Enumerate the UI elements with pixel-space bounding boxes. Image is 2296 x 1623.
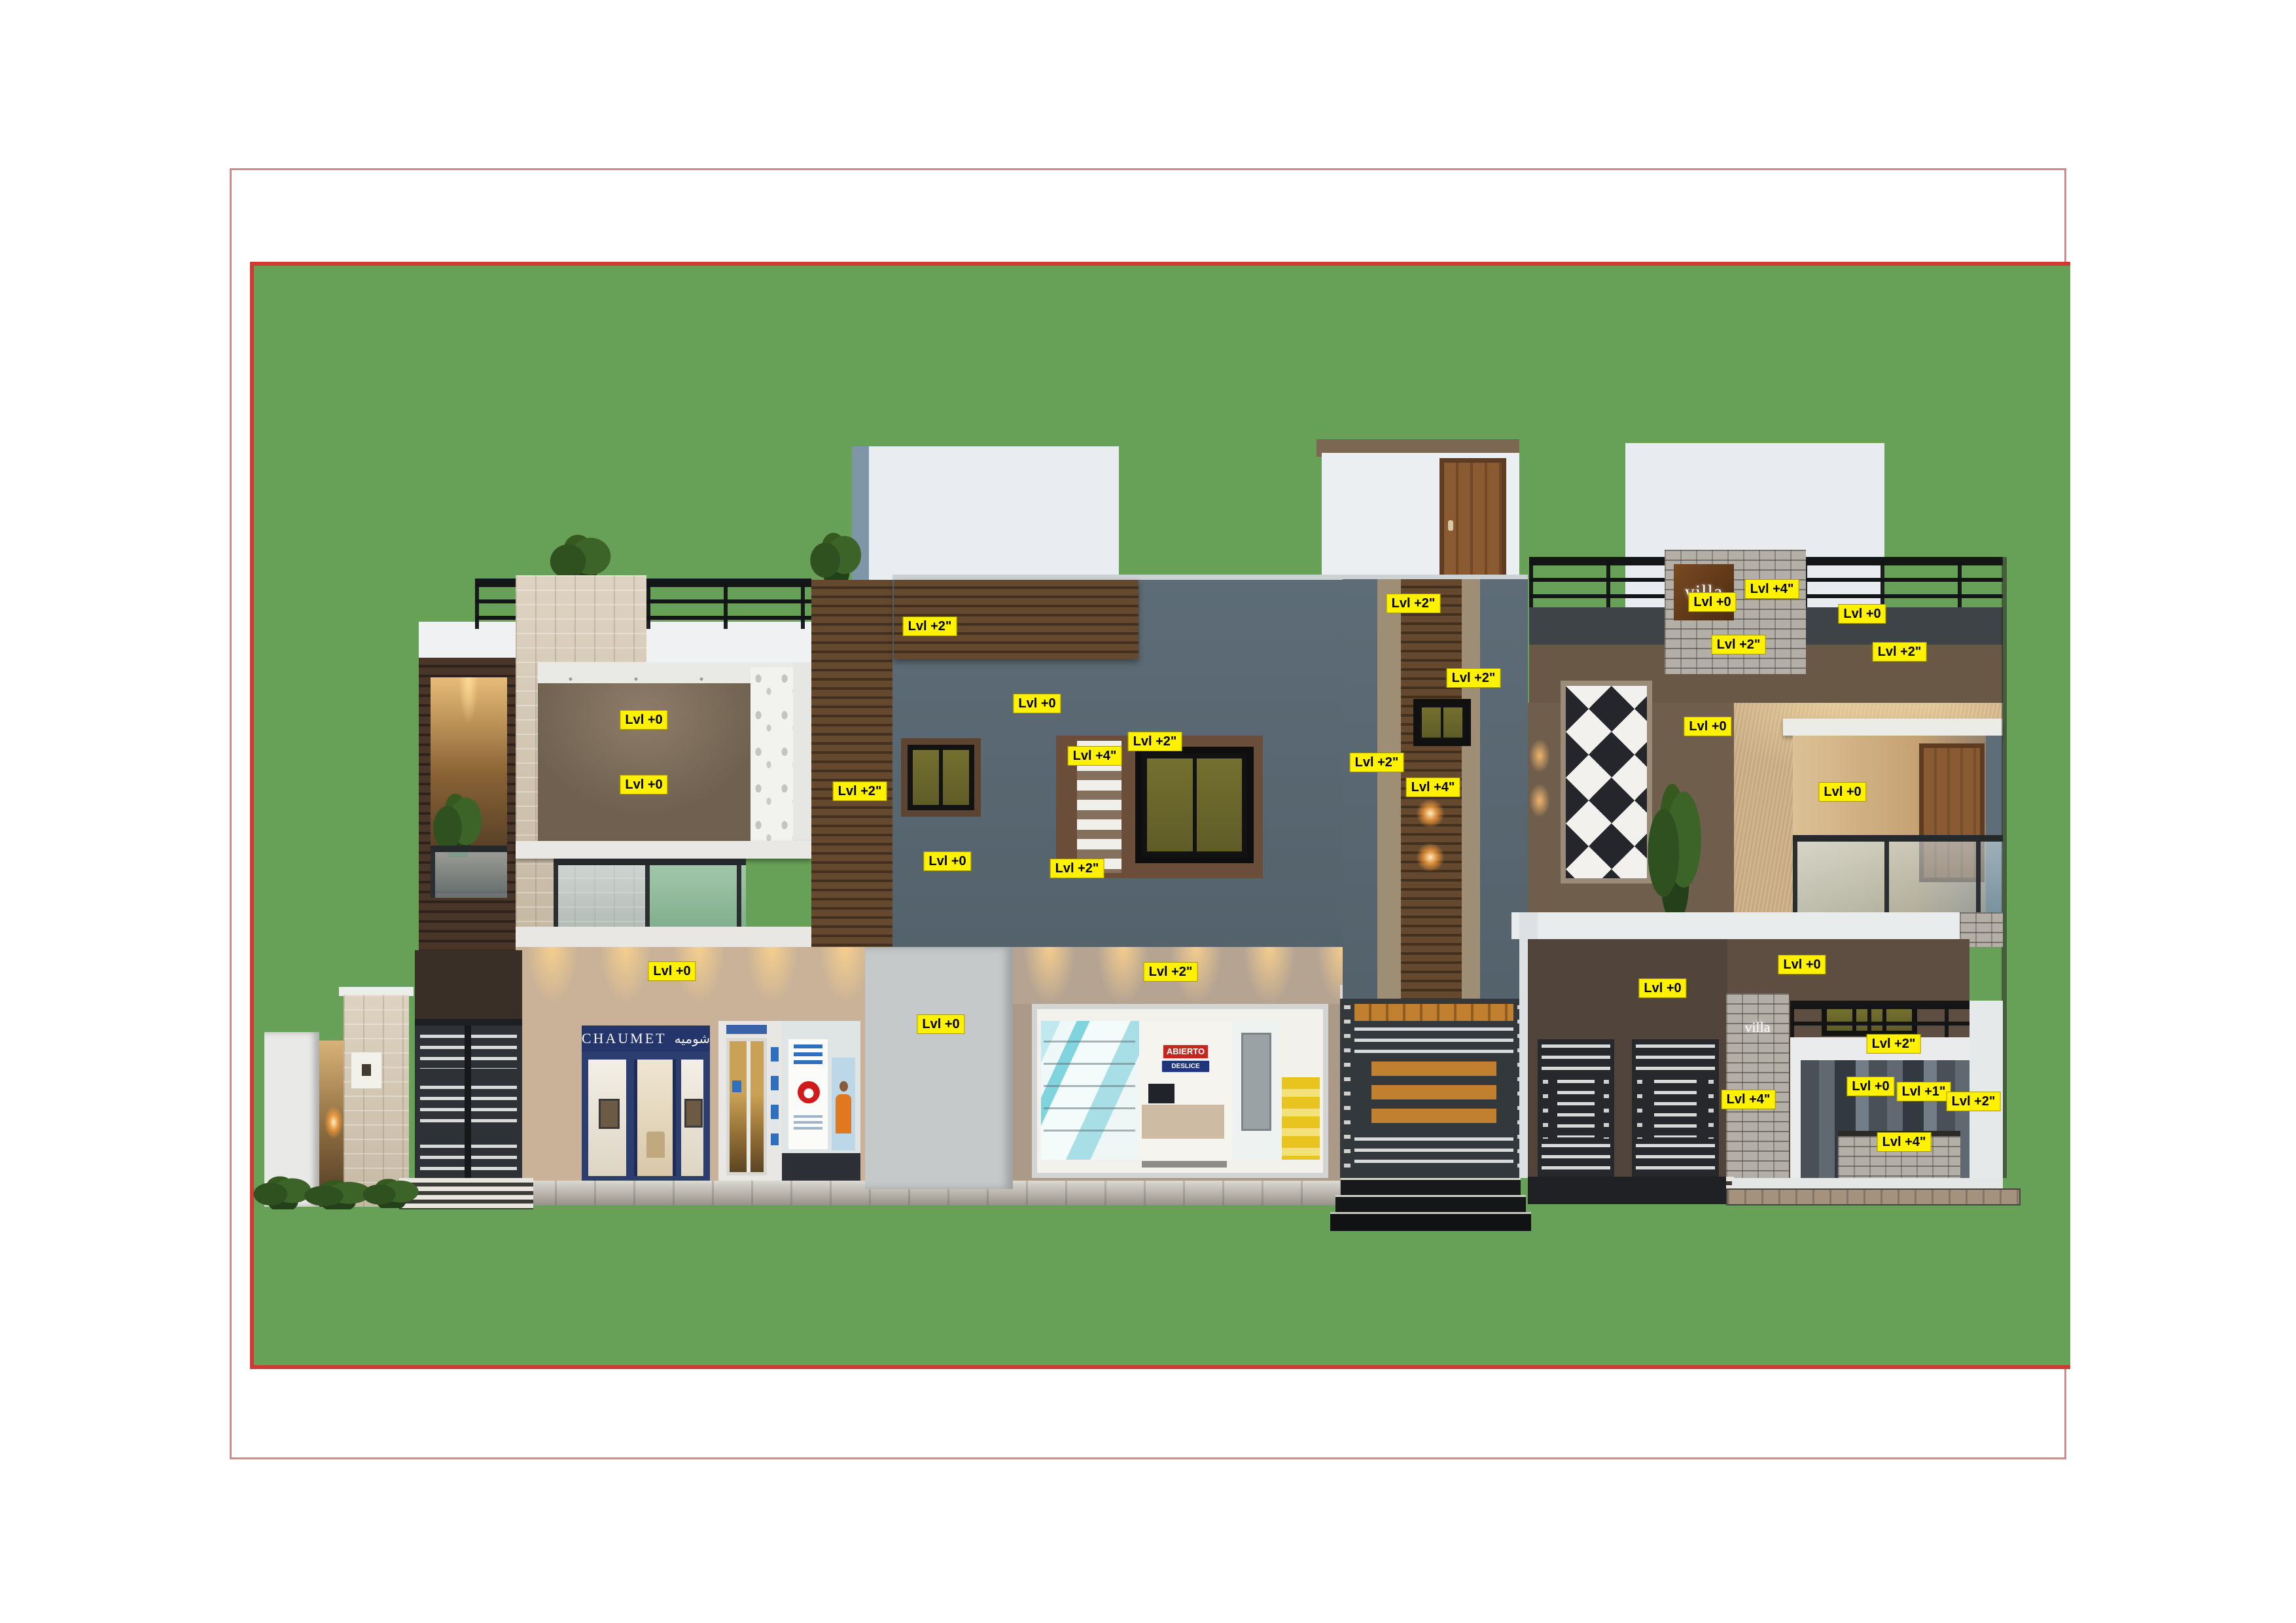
open-door-interior	[1139, 1021, 1232, 1160]
glass-entrance-door	[726, 1038, 767, 1175]
slide-sign: DESLICE	[1161, 1060, 1210, 1073]
terrace-railing-right	[646, 579, 811, 629]
gate-center-stile	[465, 1026, 471, 1178]
computer-monitor	[1148, 1084, 1174, 1103]
entry-right-pillar	[1969, 1001, 2003, 1178]
louver-ladder-strip	[1077, 741, 1122, 873]
checkout-counter	[1142, 1105, 1224, 1139]
poster-header-lines	[794, 1044, 822, 1067]
middle-window-small	[901, 738, 981, 817]
entry-frame-top	[1790, 1037, 1969, 1060]
garage-gate	[1340, 999, 1528, 1178]
terrace-railing-left	[475, 579, 517, 629]
window-base-band	[782, 1153, 860, 1183]
display-picture	[684, 1099, 703, 1128]
tower-wall-light-upper	[1411, 793, 1450, 834]
porch-shadow	[415, 950, 522, 1019]
villa-balcony-plant	[1646, 780, 1704, 912]
villa-gate-left	[1538, 1039, 1614, 1178]
balcony-interior	[538, 683, 751, 841]
gate-orange-header	[1354, 1004, 1513, 1021]
roof-access-door	[1439, 458, 1506, 579]
villa-gate-right	[1632, 1039, 1719, 1178]
chaumet-window-left	[588, 1060, 626, 1176]
chaumet-sign-text-arabic: شوميه	[675, 1032, 711, 1045]
door-side-posters	[771, 1047, 779, 1145]
tower-wall-light-lower	[1411, 837, 1450, 878]
step-3	[1330, 1212, 1531, 1231]
goods-stack	[1282, 1077, 1320, 1160]
chaumet-sign-text: CHAUMET	[582, 1031, 667, 1046]
step-2	[1335, 1195, 1526, 1214]
shelf-lines	[1044, 1041, 1135, 1152]
poster-person	[832, 1058, 855, 1150]
person-shirt	[836, 1094, 851, 1133]
step-1	[1341, 1178, 1521, 1197]
chaumet-interior-table	[646, 1132, 665, 1158]
geometric-screen-panel	[1561, 681, 1652, 883]
elevation-sheet: CHAUMET شوميه	[0, 0, 2296, 1623]
window-glass	[908, 745, 974, 810]
poster-main	[788, 1039, 828, 1149]
poster-display-window	[782, 1021, 860, 1183]
middle-fascia	[1013, 947, 1343, 1004]
gate-dots	[1543, 1080, 1548, 1139]
wall-washer-light	[321, 1099, 347, 1145]
gate-slats	[1542, 1044, 1610, 1073]
tower-beige-strip-right	[1462, 579, 1480, 999]
chaumet-shop: CHAUMET شوميه	[582, 1026, 710, 1183]
villa-roof-railing-right	[1803, 557, 2003, 612]
gate-dot-column-left	[1344, 1005, 1351, 1171]
door-sticker	[732, 1080, 741, 1092]
chaumet-window-right	[681, 1060, 703, 1176]
roof-box-left	[852, 446, 1119, 581]
gate-slats	[1636, 1144, 1715, 1170]
entry-stone-planter	[1838, 1131, 1960, 1182]
door-handle	[1448, 520, 1453, 531]
first-floor-glass-rail	[554, 859, 746, 936]
left-wing-wood-panel	[419, 658, 517, 950]
shop-entrance-door-unit	[718, 1021, 782, 1183]
main-window	[1135, 747, 1254, 863]
entry-frame-left	[1790, 1037, 1801, 1178]
villa-canopy-slab	[1783, 719, 2003, 736]
gate-dots	[1604, 1080, 1609, 1139]
middle-window-assembly	[1056, 736, 1263, 878]
poster-footer-lines	[794, 1115, 822, 1132]
garage-steps	[1330, 1178, 1531, 1230]
villa-name-board: villa	[1674, 564, 1734, 620]
gate-dots	[1708, 1080, 1714, 1139]
compound-gate	[415, 1019, 522, 1178]
niche-glass-rail	[431, 846, 507, 898]
chaumet-sign-band: CHAUMET شوميه	[582, 1026, 710, 1052]
plate-emblem	[362, 1064, 371, 1076]
chaumet-door	[634, 1060, 676, 1176]
gate-lower-slats	[1354, 1137, 1513, 1164]
open-sign: ABIERTO	[1163, 1044, 1209, 1059]
gate-center-bars	[1557, 1080, 1595, 1137]
compound-name-plate	[351, 1052, 382, 1089]
shop-glass-left	[1041, 1021, 1139, 1160]
left-wing-niche	[431, 677, 507, 891]
villa-stone-walkway	[1726, 1188, 2021, 1205]
back-door	[1241, 1033, 1271, 1131]
middle-wood-band	[894, 580, 1139, 659]
entrance-top-sign	[726, 1025, 767, 1034]
person-head	[839, 1081, 848, 1092]
entry-guard-rail	[1790, 1001, 1969, 1042]
poster-red-drop-logo	[798, 1081, 820, 1103]
gate-slats	[1636, 1044, 1715, 1073]
shop-glass-right	[1232, 1021, 1280, 1160]
gate-slats	[1542, 1144, 1610, 1170]
villa-dark-plinth	[1528, 1177, 1726, 1204]
niche-downlight	[455, 677, 482, 740]
balcony-deco-panel	[751, 668, 793, 846]
compound-stone-pillar	[344, 995, 409, 1207]
gate-dots	[1637, 1080, 1642, 1139]
tower-beige-strip-left	[1377, 579, 1401, 999]
tower-window	[1413, 699, 1471, 746]
display-picture	[599, 1099, 620, 1129]
entry-mat	[1142, 1161, 1227, 1168]
gate-center-bars	[1654, 1080, 1697, 1137]
villa-board-text: villa	[1685, 582, 1723, 602]
villa-roof-railing-left	[1529, 557, 1667, 612]
ground-floor-fascia	[1511, 912, 2003, 939]
roof-plant-right	[809, 531, 864, 584]
hedge-3	[361, 1178, 421, 1208]
wood-slat-column	[811, 580, 894, 952]
gate-upper-slats	[1354, 1027, 1513, 1056]
window-glass	[1419, 705, 1465, 740]
grey-corner-pillar	[865, 947, 1013, 1189]
tower-wood-strip	[1401, 579, 1462, 999]
gate-orange-rows	[1371, 1061, 1496, 1132]
door-stile	[747, 1041, 751, 1172]
balcony-floor-slab	[516, 841, 811, 859]
villa-pillar-text: villa	[1744, 1020, 1770, 1035]
villa-balcony-glass-rail	[1793, 835, 2003, 919]
villa-lamp-glow	[1525, 738, 1555, 818]
mini-market-storefront: ABIERTO DESLICE	[1032, 1004, 1328, 1178]
balcony-white-trim	[793, 662, 811, 853]
